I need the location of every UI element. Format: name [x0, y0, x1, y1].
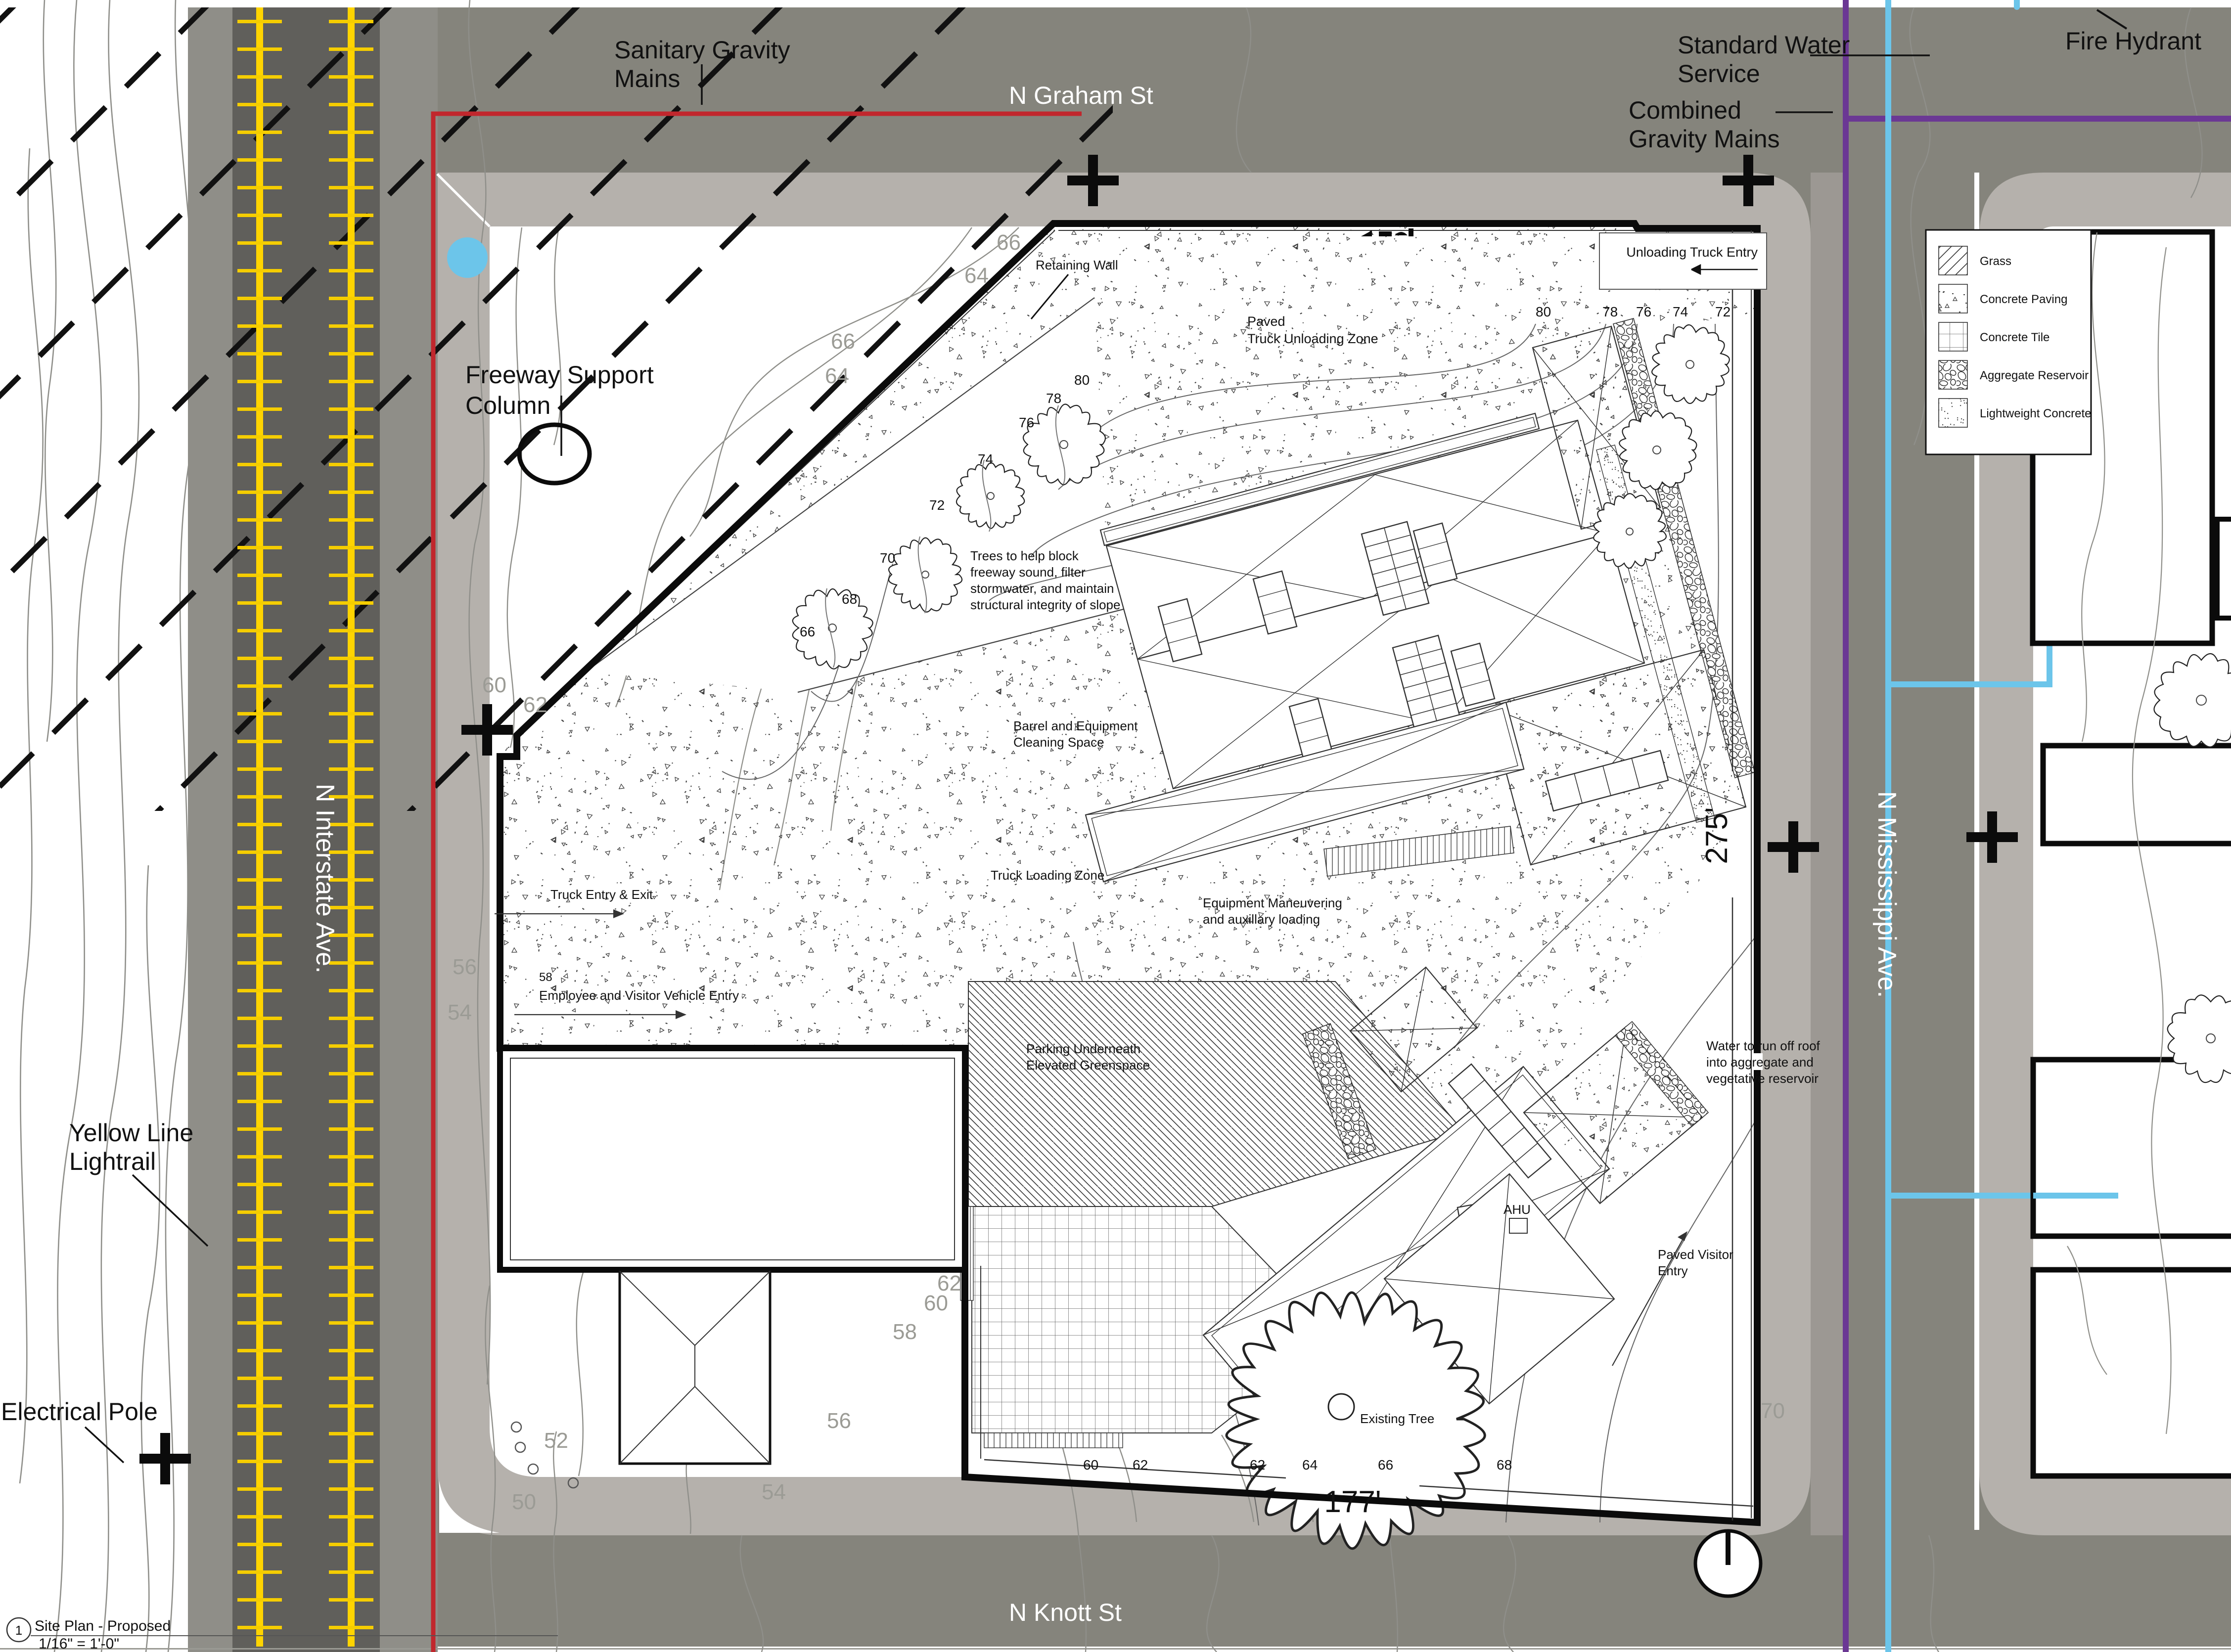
svg-text:66: 66	[800, 624, 815, 639]
svg-text:Cleaning Space: Cleaning Space	[1013, 735, 1104, 750]
svg-text:Unloading Truck Entry: Unloading Truck Entry	[1626, 245, 1758, 260]
svg-text:Yellow Line: Yellow Line	[69, 1119, 193, 1147]
svg-text:Sanitary Gravity: Sanitary Gravity	[614, 36, 790, 64]
svg-text:Water to run off roof: Water to run off roof	[1706, 1038, 1821, 1053]
svg-text:N Interstate Ave.: N Interstate Ave.	[311, 784, 339, 973]
svg-text:54: 54	[762, 1480, 786, 1504]
svg-text:56: 56	[827, 1409, 851, 1433]
svg-text:64: 64	[825, 364, 849, 388]
svg-text:freeway sound, filter: freeway sound, filter	[970, 565, 1086, 580]
svg-text:68: 68	[1497, 1457, 1512, 1473]
svg-text:66: 66	[831, 329, 855, 354]
svg-text:80: 80	[1536, 304, 1551, 319]
svg-text:Mains: Mains	[614, 65, 680, 92]
svg-text:66: 66	[997, 230, 1021, 255]
svg-text:Freeway Support: Freeway Support	[465, 361, 654, 389]
svg-text:Existing Tree: Existing Tree	[1360, 1411, 1434, 1426]
svg-text:Paved Visitor: Paved Visitor	[1658, 1247, 1733, 1262]
svg-text:76: 76	[1019, 415, 1034, 430]
svg-text:Parking Underneath: Parking Underneath	[1026, 1041, 1140, 1056]
svg-text:vegetative reservoir: vegetative reservoir	[1706, 1071, 1819, 1086]
svg-text:Barrel and Equipment: Barrel and Equipment	[1013, 718, 1138, 733]
svg-text:52: 52	[544, 1429, 568, 1453]
svg-text:62: 62	[523, 693, 547, 717]
svg-text:68: 68	[842, 591, 857, 607]
svg-text:54: 54	[448, 1000, 472, 1025]
svg-text:64: 64	[1302, 1457, 1318, 1473]
svg-text:72: 72	[1715, 304, 1730, 319]
svg-text:Grass: Grass	[1980, 255, 2011, 268]
svg-text:Truck Unloading Zone: Truck Unloading Zone	[1247, 331, 1378, 346]
svg-text:Gravity Mains: Gravity Mains	[1629, 125, 1780, 153]
svg-text:62: 62	[937, 1271, 961, 1295]
svg-text:Service: Service	[1678, 60, 1760, 88]
svg-text:N Mississippi Ave.: N Mississippi Ave.	[1872, 791, 1901, 998]
svg-text:Concrete Tile: Concrete Tile	[1980, 331, 2049, 344]
svg-text:56: 56	[453, 955, 477, 979]
svg-text:50: 50	[512, 1490, 536, 1514]
svg-text:into aggregate and: into aggregate and	[1706, 1055, 1814, 1070]
svg-text:78: 78	[1046, 391, 1061, 406]
svg-text:62: 62	[1250, 1457, 1265, 1473]
svg-text:1: 1	[15, 1623, 22, 1638]
svg-text:Column: Column	[465, 392, 550, 419]
svg-text:structural integrity of slope: structural integrity of slope	[970, 597, 1120, 612]
svg-text:Lightweight Concrete: Lightweight Concrete	[1980, 407, 2091, 420]
svg-text:Combined: Combined	[1629, 96, 1741, 124]
svg-text:60: 60	[482, 673, 506, 697]
svg-text:58: 58	[539, 971, 552, 984]
svg-text:Truck Loading Zone: Truck Loading Zone	[991, 868, 1104, 883]
svg-text:Site Plan - Proposed: Site Plan - Proposed	[35, 1618, 171, 1634]
svg-text:Concrete Paving: Concrete Paving	[1980, 293, 2067, 306]
svg-text:70: 70	[880, 550, 895, 566]
svg-text:64: 64	[964, 264, 989, 288]
svg-text:Truck Entry & Exit: Truck Entry & Exit	[550, 887, 653, 902]
svg-text:76: 76	[1636, 304, 1651, 319]
svg-text:Fire Hydrant: Fire Hydrant	[2065, 27, 2201, 55]
svg-text:Aggregate Reservoir: Aggregate Reservoir	[1980, 369, 2089, 382]
svg-text:N Knott St: N Knott St	[1009, 1599, 1122, 1626]
svg-text:Retaining Wall: Retaining Wall	[1036, 258, 1118, 272]
svg-text:Lightrail: Lightrail	[69, 1148, 156, 1175]
svg-text:66: 66	[1378, 1457, 1393, 1473]
svg-text:60: 60	[1083, 1457, 1098, 1473]
svg-text:70: 70	[1761, 1399, 1785, 1423]
svg-text:74: 74	[978, 451, 993, 467]
svg-text:74: 74	[1673, 304, 1688, 319]
svg-text:Employee and Visitor Vehicle E: Employee and Visitor Vehicle Entry	[539, 988, 739, 1003]
svg-text:Paved: Paved	[1247, 314, 1285, 329]
svg-text:stormwater, and maintain: stormwater, and maintain	[970, 581, 1114, 596]
svg-text:and auxillary loading: and auxillary loading	[1203, 912, 1320, 927]
svg-text:1/16" = 1'-0": 1/16" = 1'-0"	[39, 1636, 119, 1652]
svg-text:275': 275'	[1700, 807, 1734, 864]
svg-text:78: 78	[1602, 304, 1618, 319]
svg-text:Electrical Pole: Electrical Pole	[1, 1398, 158, 1426]
svg-text:80: 80	[1074, 372, 1090, 388]
svg-text:Elevated Greenspace: Elevated Greenspace	[1026, 1058, 1150, 1072]
svg-text:N Graham St: N Graham St	[1009, 82, 1153, 109]
svg-text:Equipment Maneuvering: Equipment Maneuvering	[1203, 895, 1342, 910]
svg-text:Trees to help block: Trees to help block	[970, 548, 1079, 563]
svg-text:AHU: AHU	[1503, 1202, 1531, 1217]
svg-text:177': 177'	[1324, 1485, 1381, 1519]
svg-text:58: 58	[893, 1320, 917, 1344]
svg-text:72: 72	[929, 497, 945, 513]
svg-text:62: 62	[1133, 1457, 1148, 1473]
